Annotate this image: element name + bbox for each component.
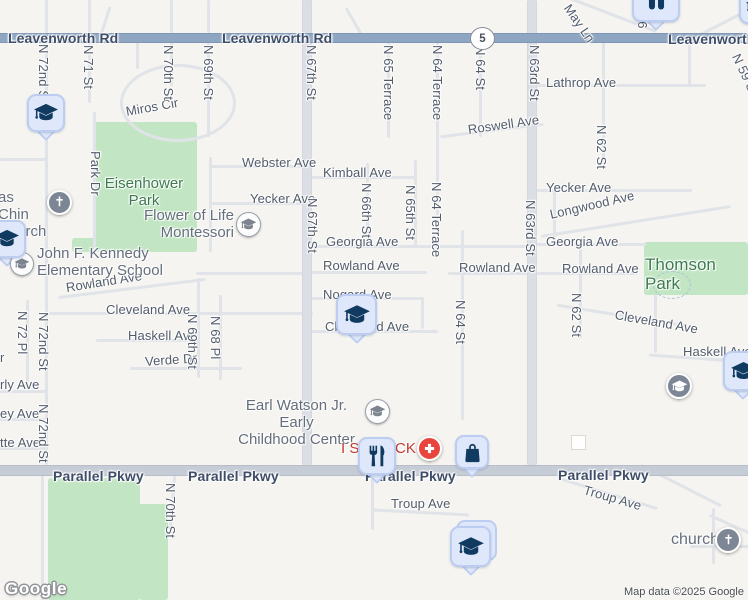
street-label: N 65 Terrace: [381, 45, 396, 120]
street-label: N 63rd St: [527, 45, 542, 101]
poi-label-line: as Chin: [0, 190, 46, 224]
poi-label-line: Eisenhower: [98, 176, 190, 193]
street-label: Parallel Pkwy: [558, 467, 649, 483]
church-cross-icon: [720, 532, 737, 549]
street-label: Yecker Ave: [546, 180, 611, 195]
church-circle-1-body: [47, 190, 72, 215]
medical-circle-body: [417, 436, 442, 461]
church-cross-icon: [51, 194, 68, 211]
road-segment: [207, 0, 210, 33]
shopping-pin-body: [455, 435, 489, 469]
street-label: Parallel Pkwy: [188, 468, 279, 484]
street-label: N 72 Pl: [15, 311, 30, 354]
street-label: N 67th St: [304, 45, 319, 100]
poi-label-line: CK: [395, 441, 419, 458]
street-label: Leavenworth Rd: [222, 30, 332, 46]
school-circle-2[interactable]: [236, 212, 261, 237]
poi-label-line: Montessori: [138, 225, 234, 242]
graduation-cap-icon: [457, 533, 485, 561]
street-label: N 62 St: [569, 293, 584, 337]
street-label: N 72nd St: [36, 404, 51, 463]
school-circle-4-body: [666, 373, 692, 399]
school-pin-stack[interactable]: [450, 526, 491, 567]
street-label: N 64 St: [453, 300, 468, 344]
street-label: Rowland Ave: [323, 258, 400, 273]
street-label: Troup Ave: [582, 482, 643, 513]
medical-cross-icon: [421, 440, 438, 457]
street-label: Cleveland Ave: [106, 302, 190, 317]
graduation-cap-icon: [33, 100, 59, 126]
school-pin-1[interactable]: [27, 94, 65, 132]
poi-label: John F. KennedyElementary School: [37, 246, 167, 280]
street-label: Leavenworth Rd: [668, 31, 748, 47]
street-label: N 69th St: [201, 45, 216, 100]
street-label: N 70th St: [161, 45, 176, 100]
street-label: Lathrop Ave: [546, 75, 616, 90]
road-segment: [136, 41, 139, 69]
poi-label: church: [671, 531, 719, 549]
street-label: N 68 Pl: [208, 316, 223, 359]
street-label: Parallel Pkwy: [53, 468, 144, 484]
graduation-cap-icon: [730, 358, 748, 385]
school-pin-4-body: [723, 351, 748, 391]
graduation-cap-icon: [240, 216, 257, 233]
school-pin-1-body: [27, 94, 65, 132]
map-attribution: Map data ©2025 Google: [624, 586, 744, 598]
poi-label: CK: [395, 441, 419, 458]
street-label: Kimball Ave: [323, 165, 392, 180]
street-label: Webster Ave: [242, 155, 316, 170]
school-pin-3-body: [336, 294, 377, 335]
street-label: N 67th St: [305, 198, 320, 253]
poi-label: Thomson Park: [645, 255, 748, 293]
school-pin-2[interactable]: [0, 220, 26, 258]
street-label: ey Ave: [0, 406, 39, 421]
corner-pin[interactable]: [739, 0, 748, 24]
poi-label-line: Thomson Park: [645, 255, 748, 293]
road-segment: [0, 158, 47, 161]
shopping-pin[interactable]: [455, 435, 489, 469]
church-circle-2[interactable]: [715, 527, 741, 553]
restaurant-pin[interactable]: [358, 437, 396, 475]
street-label: Troup Ave: [391, 496, 450, 511]
graduation-cap-icon: [369, 403, 386, 420]
medical-circle[interactable]: [417, 436, 442, 461]
road-segment: [88, 0, 91, 33]
street-label: N 59 St: [729, 51, 748, 97]
poi-label-line: Flower of Life: [138, 208, 234, 225]
school-pin-stack-body: [450, 526, 491, 567]
poi-label-line: church: [671, 531, 719, 549]
columns-pin-body: [632, 0, 680, 22]
columns-icon: [640, 0, 673, 15]
graduation-cap-icon: [14, 256, 30, 272]
street-label: N 66th St: [359, 183, 374, 238]
graduation-cap-icon: [671, 378, 688, 395]
school-circle-2-body: [236, 212, 261, 237]
street-label: N 70th St: [163, 483, 178, 538]
road-segment: [421, 297, 424, 329]
map-canvas[interactable]: Leavenworth RdLeavenworth RdLeavenworth …: [0, 0, 748, 600]
street-label: N 64 Terrace: [430, 45, 445, 120]
school-circle-3[interactable]: [365, 399, 390, 424]
church-circle-2-body: [715, 527, 741, 553]
street-label: N 65th St: [403, 185, 418, 240]
street-label: N 69th St: [185, 314, 200, 369]
school-circle-3-body: [365, 399, 390, 424]
street-label: N 72nd St: [36, 312, 51, 371]
corner-pin-body: [739, 0, 748, 24]
street-label: N 64 St: [473, 46, 488, 90]
graduation-cap-icon: [343, 301, 371, 329]
street-label: r: [0, 350, 4, 365]
school-circle-4[interactable]: [666, 373, 692, 399]
street-label: Rowland Ave: [459, 260, 536, 275]
road-segment: [170, 0, 173, 33]
church-circle-1[interactable]: [47, 190, 72, 215]
road-segment: [688, 41, 691, 87]
street-label: Leavenworth Rd: [8, 30, 118, 46]
building-footprint: [571, 435, 586, 450]
columns-pin[interactable]: [632, 0, 680, 22]
street-label: Rowland Ave: [562, 261, 639, 276]
school-pin-3[interactable]: [336, 294, 377, 335]
fork-knife-icon: [364, 443, 390, 469]
poi-label: Flower of LifeMontessori: [138, 208, 234, 242]
street-label: rly Ave: [0, 377, 39, 392]
route-5-shield: 5: [470, 27, 495, 50]
street-label: N 63rd St: [523, 200, 538, 256]
google-logo[interactable]: Google: [5, 579, 67, 599]
poi-label: EisenhowerPark: [98, 176, 190, 210]
road-segment: [345, 7, 363, 34]
school-pin-2-body: [0, 220, 26, 258]
road-segment: [45, 0, 48, 33]
street-label: N 62 St: [594, 125, 609, 169]
graduation-cap-icon: [0, 226, 20, 252]
poi-label-line: Elementary School: [37, 263, 167, 280]
poi-label-line: Earl Watson Jr. Early: [228, 398, 365, 432]
street-label: Georgia Ave: [546, 234, 618, 249]
restaurant-pin-body: [358, 437, 396, 475]
poi-label-line: John F. Kennedy: [37, 246, 167, 263]
street-label: N 71 St: [81, 45, 96, 89]
street-label: N 64 Terrace: [429, 182, 444, 257]
school-pin-4[interactable]: [723, 351, 748, 391]
shopping-bag-icon: [461, 441, 484, 464]
street-label: tte Ave: [0, 435, 40, 450]
road-segment: [196, 272, 313, 275]
